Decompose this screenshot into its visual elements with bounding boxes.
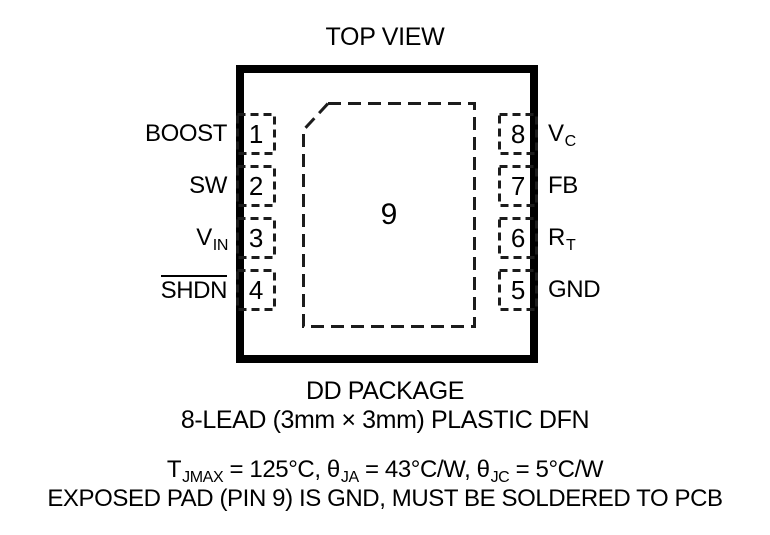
pin-label-text: R (548, 224, 565, 251)
package-description-caption: 8-LEAD (3mm × 3mm) PLASTIC DFN (0, 406, 770, 434)
pin-number-text: 2 (249, 171, 263, 202)
pin-label-boost: BOOST (145, 119, 228, 149)
thermal-note-segment: = 125°C, θ (223, 456, 340, 483)
exposed-pad-number: 9 (302, 102, 476, 328)
thermal-note-subscript: JMAX (182, 469, 223, 486)
pin-label-vin: VIN (196, 223, 228, 253)
pin-label-text: GND (548, 276, 600, 303)
pin-label-shdn: SHDN (161, 275, 228, 306)
pin-5-number: 5 (498, 269, 538, 311)
pin-configuration-diagram: TOP VIEW 1 2 3 4 8 7 6 5 9 BOOST SW VIN (0, 0, 770, 535)
pin-label-vc: VC (548, 119, 576, 149)
diagram-title: TOP VIEW (0, 22, 770, 52)
pin-number-text: 6 (511, 223, 525, 254)
pin-6-number: 6 (498, 217, 538, 259)
pin-label-text: BOOST (145, 120, 227, 147)
exposed-pad-note: EXPOSED PAD (PIN 9) IS GND, MUST BE SOLD… (0, 485, 770, 513)
package-outline: 1 2 3 4 8 7 6 5 9 (236, 65, 538, 363)
pin-label-fb: FB (548, 171, 579, 201)
thermal-note: TJMAX = 125°C, θJA = 43°C/W, θJC = 5°C/W (0, 456, 770, 484)
pin-1-number: 1 (236, 113, 276, 155)
pin-label-text: FB (548, 172, 578, 199)
exposed-pad-number-text: 9 (381, 198, 398, 232)
pin-label-sw: SW (189, 171, 228, 201)
pin-number-text: 4 (249, 275, 263, 306)
pin-number-text: 3 (249, 223, 263, 254)
thermal-note-subscript: JC (491, 469, 510, 486)
pin-number-text: 8 (511, 119, 525, 150)
pin-label-gnd: GND (548, 275, 601, 305)
pin-8-number: 8 (498, 113, 538, 155)
pin-2-number: 2 (236, 165, 276, 207)
pin-3-number: 3 (236, 217, 276, 259)
pin-label-subscript: C (565, 133, 576, 150)
thermal-note-segment: = 43°C/W, θ (359, 456, 490, 483)
pin-label-subscript: IN (213, 237, 228, 254)
pin-label-subscript: T (566, 237, 575, 254)
pin-number-text: 5 (511, 275, 525, 306)
thermal-note-subscript: JA (341, 469, 359, 486)
pin-label-rt: RT (548, 223, 575, 253)
package-name-caption: DD PACKAGE (0, 377, 770, 405)
pin-label-text: V (196, 224, 212, 251)
pin-label-text: SW (189, 172, 227, 199)
pin-4-number: 4 (236, 269, 276, 311)
pin-number-text: 7 (511, 171, 525, 202)
thermal-note-segment: T (167, 456, 181, 483)
pin-number-text: 1 (249, 119, 263, 150)
pin-7-number: 7 (498, 165, 538, 207)
pin-label-text: V (548, 120, 564, 147)
thermal-note-segment: = 5°C/W (509, 456, 603, 483)
pin-label-text-overlined: SHDN (161, 275, 227, 303)
